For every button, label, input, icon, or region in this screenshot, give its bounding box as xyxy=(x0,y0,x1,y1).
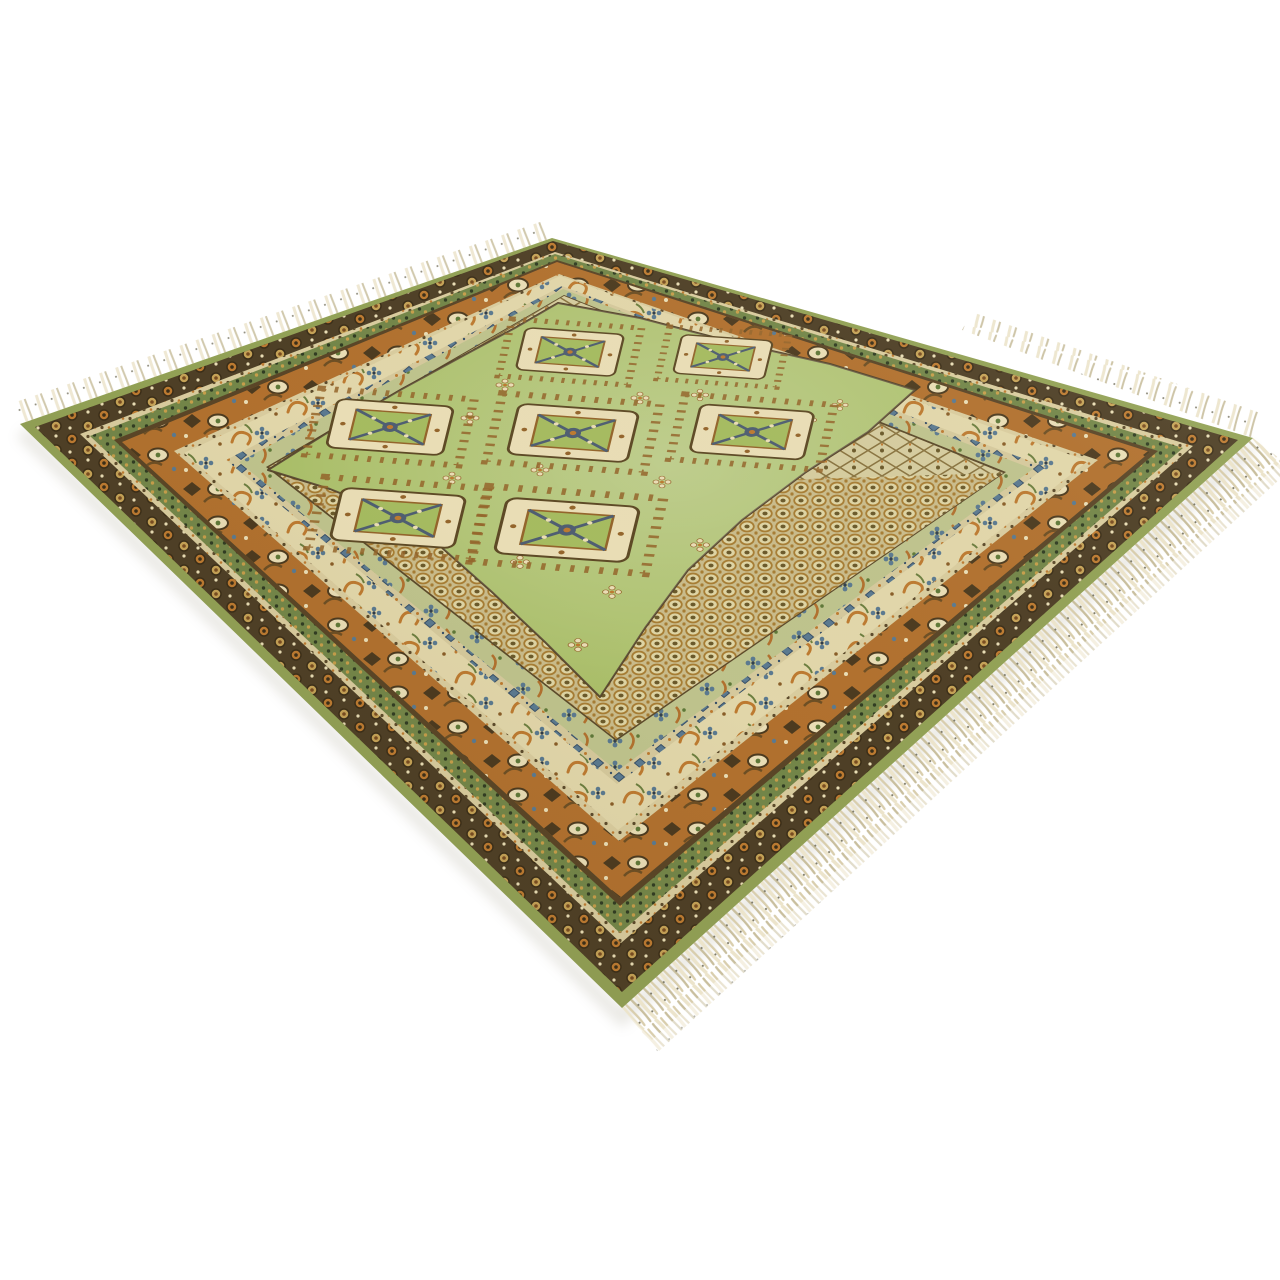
rug-illustration xyxy=(0,0,1280,1280)
rug-product-photo: Vintage hand-knotted area rug in olive g… xyxy=(0,0,1280,1280)
photo-canvas: Vintage hand-knotted area rug in olive g… xyxy=(0,0,1280,1280)
